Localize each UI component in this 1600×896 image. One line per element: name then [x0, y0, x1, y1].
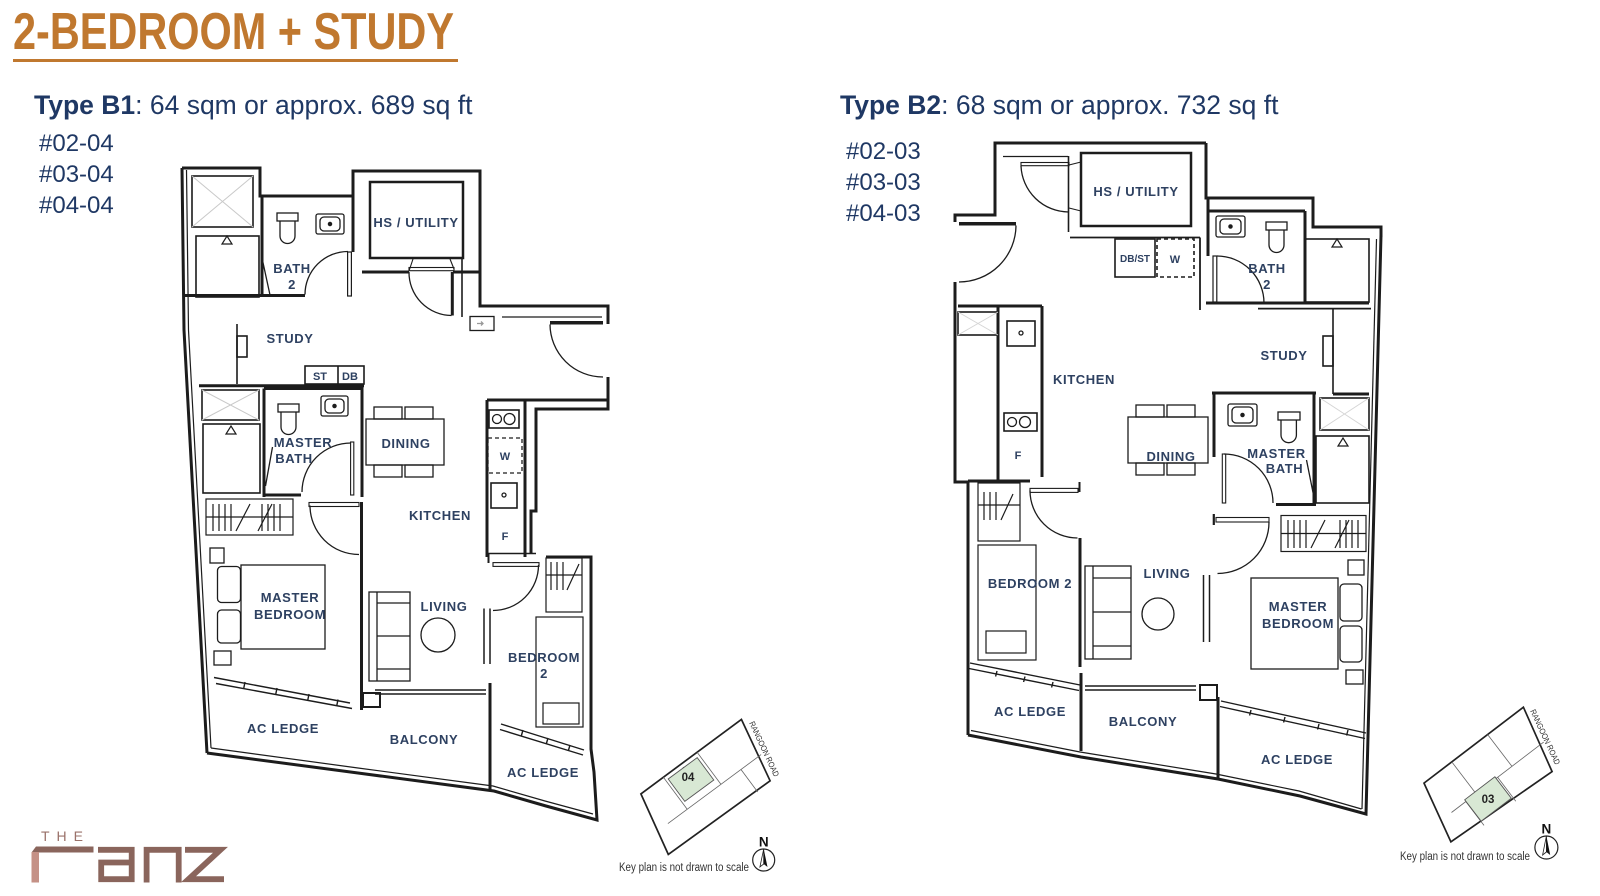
svg-text:Key plan is not drawn to scale: Key plan is not drawn to scale	[1400, 851, 1530, 863]
svg-text:AC LEDGE: AC LEDGE	[507, 765, 579, 780]
svg-text:MASTER: MASTER	[1247, 446, 1306, 461]
svg-text:BATH: BATH	[1266, 461, 1304, 476]
svg-text:MASTER: MASTER	[274, 435, 333, 450]
svg-text:BEDROOM 2: BEDROOM 2	[988, 576, 1072, 591]
svg-text:KITCHEN: KITCHEN	[409, 508, 471, 523]
svg-text:F: F	[502, 531, 509, 543]
svg-text:BALCONY: BALCONY	[1109, 714, 1177, 729]
svg-text:BEDROOM: BEDROOM	[508, 650, 580, 665]
svg-text:BEDROOM: BEDROOM	[1262, 616, 1334, 631]
svg-text:THE: THE	[41, 828, 90, 844]
svg-text:N: N	[1542, 822, 1552, 837]
svg-text:2: 2	[1263, 277, 1271, 292]
svg-text:2: 2	[540, 666, 548, 681]
svg-text:ST: ST	[313, 371, 327, 383]
svg-text:Key plan is not drawn to scale: Key plan is not drawn to scale	[619, 862, 749, 874]
svg-text:LIVING: LIVING	[1144, 566, 1191, 581]
svg-text:DB: DB	[342, 371, 358, 383]
svg-text:2: 2	[288, 277, 296, 292]
svg-text:MASTER: MASTER	[1269, 599, 1328, 614]
svg-text:LIVING: LIVING	[421, 599, 468, 614]
svg-text:AC LEDGE: AC LEDGE	[1261, 752, 1333, 767]
svg-text:KITCHEN: KITCHEN	[1053, 372, 1115, 387]
svg-text:BALCONY: BALCONY	[390, 732, 458, 747]
svg-text:BATH: BATH	[1248, 261, 1286, 276]
svg-text:HS / UTILITY: HS / UTILITY	[1093, 184, 1178, 199]
svg-text:BATH: BATH	[273, 261, 311, 276]
svg-text:BATH: BATH	[275, 451, 313, 466]
svg-text:HS / UTILITY: HS / UTILITY	[373, 215, 458, 230]
svg-text:BEDROOM: BEDROOM	[254, 607, 326, 622]
svg-text:MASTER: MASTER	[261, 590, 320, 605]
svg-text:STUDY: STUDY	[1260, 348, 1307, 363]
svg-text:W: W	[1170, 254, 1181, 266]
svg-text:04: 04	[682, 772, 695, 784]
svg-text:DB/ST: DB/ST	[1120, 254, 1150, 265]
svg-text:AC LEDGE: AC LEDGE	[247, 721, 319, 736]
svg-text:F: F	[1015, 450, 1022, 462]
svg-text:AC LEDGE: AC LEDGE	[994, 704, 1066, 719]
svg-text:03: 03	[1482, 794, 1495, 806]
svg-text:W: W	[500, 451, 511, 463]
svg-text:DINING: DINING	[381, 436, 430, 451]
svg-text:DINING: DINING	[1146, 449, 1195, 464]
svg-text:N: N	[759, 835, 769, 850]
svg-text:STUDY: STUDY	[266, 331, 313, 346]
